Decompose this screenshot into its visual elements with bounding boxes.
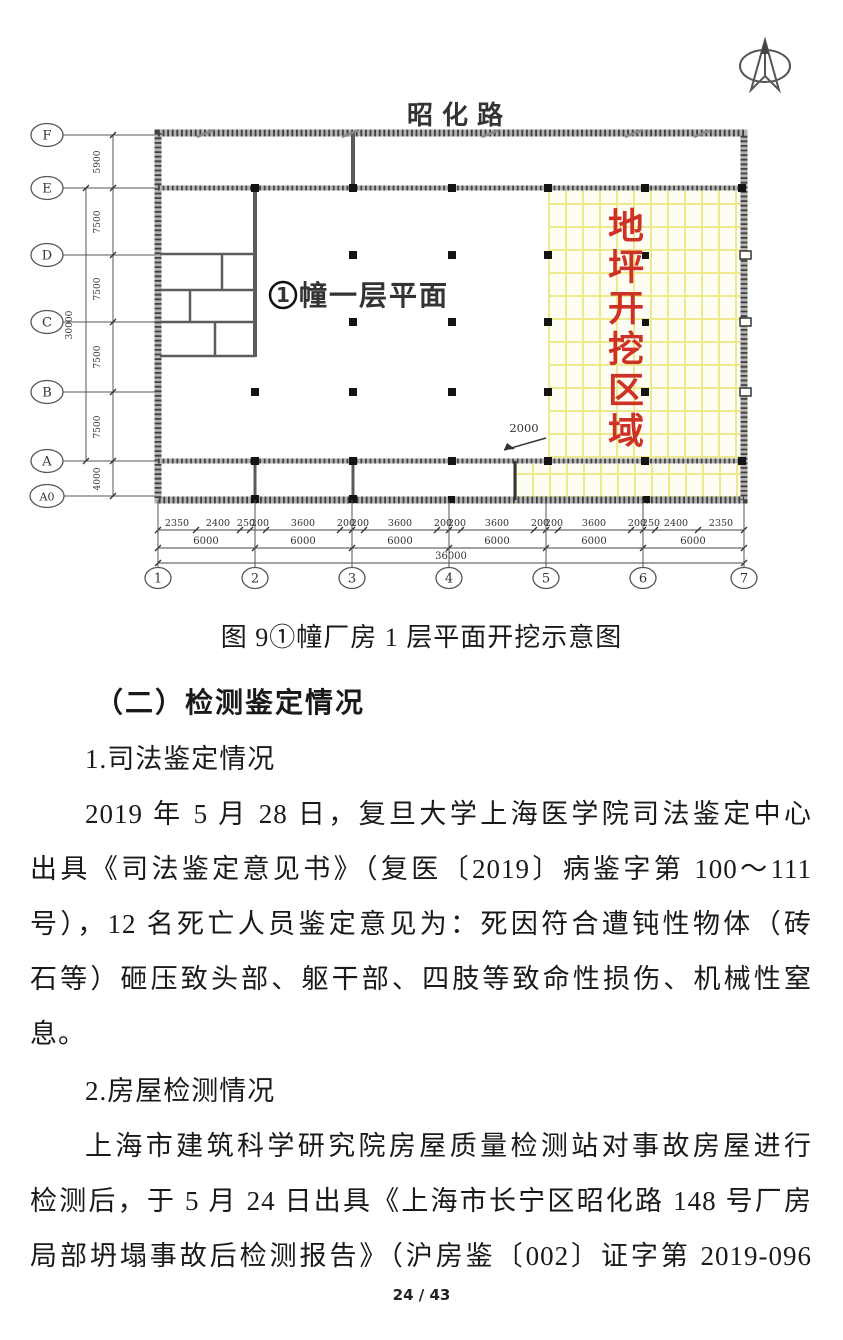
svg-text:2400: 2400 (664, 518, 688, 529)
col-dim-row1: 2350 2400 250 200 3600 200 200 3600 200 … (155, 518, 747, 533)
svg-text:2350: 2350 (165, 518, 189, 529)
row-axis-b: B (42, 386, 52, 401)
col-axis-5: 5 (542, 572, 550, 587)
road-label: 昭 化 路 (407, 100, 504, 131)
svg-text:6000: 6000 (387, 536, 412, 547)
svg-text:3600: 3600 (291, 518, 315, 529)
body-line: 检测后，于 5 月 24 日出具《上海市长宁区昭化路 148 号厂房 (30, 1184, 812, 1218)
page-number: 24 / 43 (0, 1286, 843, 1304)
body-line: 2.房屋检测情况 (85, 1074, 812, 1108)
row-total-dim: 30000 (65, 310, 75, 339)
svg-text:7500: 7500 (93, 210, 103, 233)
svg-text:7500: 7500 (93, 415, 103, 438)
row-axis-f: F (42, 129, 51, 144)
svg-text:6000: 6000 (193, 536, 218, 547)
row-dimension-labels: 5900 7500 7500 7500 7500 4000 30000 (65, 150, 103, 490)
body-line: 出具《司法鉴定意见书》（复医〔2019〕病鉴字第 100～111 (30, 852, 812, 886)
svg-text:250: 250 (642, 518, 660, 529)
svg-text:200: 200 (545, 518, 563, 529)
svg-text:6000: 6000 (581, 536, 606, 547)
body-line: 号），12 名死亡人员鉴定意见为：死因符合遭钝性物体（砖 (30, 907, 812, 941)
svg-text:2350: 2350 (709, 518, 733, 529)
svg-text:3600: 3600 (582, 518, 606, 529)
row-axis-a: A (41, 455, 52, 470)
body-line: 局部坍塌事故后检测报告》（沪房鉴〔002〕证字第 2019-096 (30, 1239, 812, 1273)
svg-text:3600: 3600 (485, 518, 509, 529)
col-axis-6: 6 (639, 572, 647, 587)
col-axis-2: 2 (251, 572, 259, 587)
north-arrow-icon (740, 40, 790, 90)
body-line: 上海市建筑科学研究院房屋质量检测站对事故房屋进行 (85, 1129, 812, 1163)
figure-caption: 图 9①幢厂房 1 层平面开挖示意图 (0, 617, 843, 654)
svg-text:2400: 2400 (206, 518, 230, 529)
col-dim-row2: 6000 6000 6000 6000 6000 6000 (155, 536, 747, 551)
document-page: 地坪开挖区域 昭 化 路 (0, 0, 843, 1340)
body-line: 2019 年 5 月 28 日，复旦大学上海医学院司法鉴定中心 (85, 797, 812, 831)
dim-2000: 2000 (504, 421, 546, 450)
svg-text:6000: 6000 (680, 536, 705, 547)
body-line: 1.司法鉴定情况 (85, 742, 812, 776)
col-axis-4: 4 (445, 572, 453, 587)
svg-text:4000: 4000 (93, 467, 103, 490)
body-line: 息。 (30, 1017, 812, 1051)
row-axis-c: C (42, 316, 52, 331)
svg-text:7500: 7500 (93, 277, 103, 300)
row-axis-bubbles: F E D C B A A0 (30, 124, 64, 508)
total-width-dim: 36000 (435, 551, 467, 562)
col-axis-bubbles: 1 2 3 4 5 6 7 (145, 568, 757, 589)
svg-text:200: 200 (448, 518, 466, 529)
section-heading: （二）检测鉴定情况 (95, 681, 365, 721)
svg-text:200: 200 (251, 518, 269, 529)
svg-text:6000: 6000 (484, 536, 509, 547)
svg-text:7500: 7500 (93, 345, 103, 368)
svg-text:2000: 2000 (509, 421, 538, 435)
row-axis-d: D (42, 249, 52, 264)
svg-text:5900: 5900 (93, 150, 103, 173)
svg-text:幢一层平面: 幢一层平面 (299, 279, 449, 312)
col-dim-row3: 36000 (155, 551, 747, 566)
svg-text:1: 1 (276, 283, 290, 307)
columns (251, 184, 746, 503)
col-axis-1: 1 (154, 572, 162, 587)
dim-ticks-left (83, 132, 116, 499)
unit-label: 1 幢一层平面 (270, 279, 449, 312)
svg-text:6000: 6000 (290, 536, 315, 547)
svg-text:3600: 3600 (388, 518, 412, 529)
row-axis-leader-lines (63, 135, 158, 496)
row-axis-a0: A0 (39, 491, 55, 504)
floor-plan-drawing: 昭 化 路 F E D C B (0, 0, 843, 612)
row-axis-e: E (42, 182, 52, 197)
col-axis-3: 3 (348, 572, 356, 587)
body-line: 石等）砸压致头部、躯干部、四肢等致命性损伤、机械性窒 (30, 962, 812, 996)
svg-text:200: 200 (351, 518, 369, 529)
col-axis-7: 7 (740, 572, 748, 587)
